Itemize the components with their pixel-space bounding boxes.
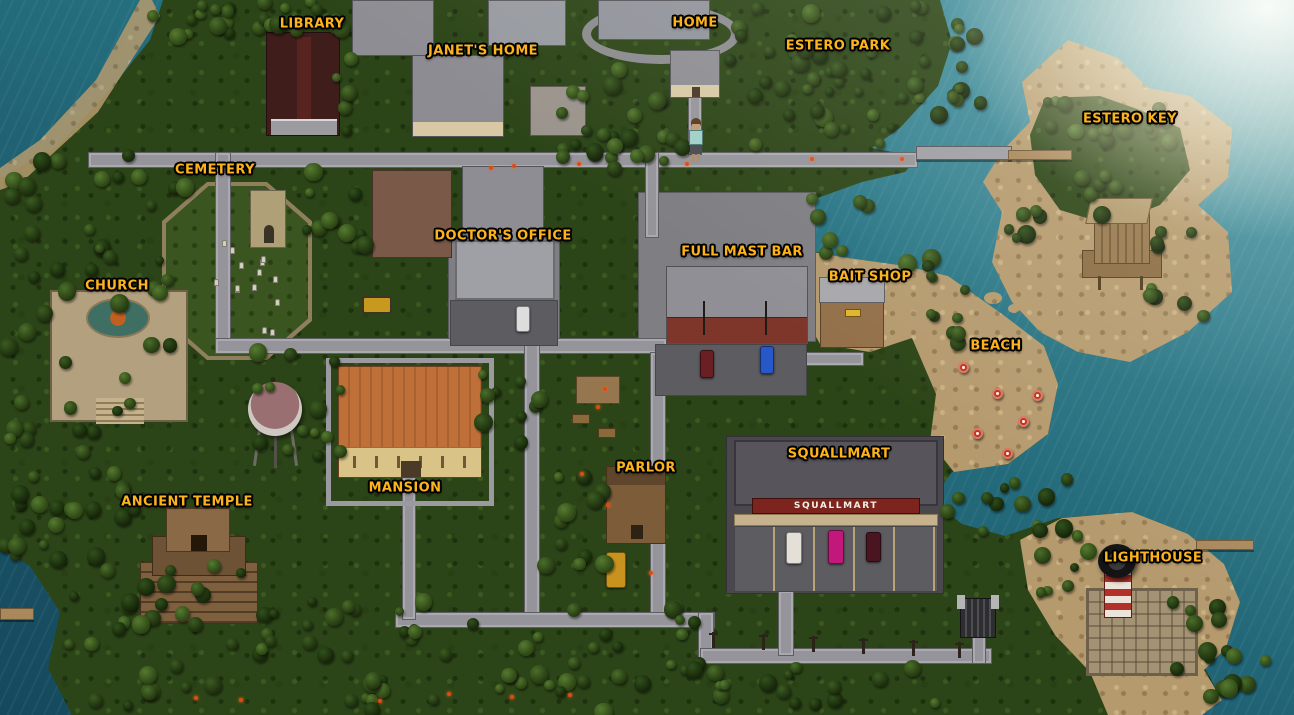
map-label-library[interactable]: LIBRARY: [280, 17, 345, 32]
map-label-estero-park[interactable]: ESTERO PARK: [786, 39, 890, 54]
map-label-mansion[interactable]: MANSION: [369, 481, 442, 496]
map-label-full-mast-bar[interactable]: FULL MAST BAR: [681, 245, 802, 260]
map-label-bait-shop[interactable]: BAIT SHOP: [829, 270, 912, 285]
map-label-parlor[interactable]: PARLOR: [616, 461, 676, 476]
map-label-cemetery[interactable]: CEMETERY: [175, 163, 255, 178]
map-label-doctors-office[interactable]: DOCTOR'S OFFICE: [434, 229, 571, 244]
map-label-squallmart[interactable]: SQUALLMART: [788, 447, 891, 462]
map-label-beach[interactable]: BEACH: [970, 339, 1021, 354]
map-label-lighthouse[interactable]: LIGHTHOUSE: [1104, 551, 1202, 566]
map-label-church[interactable]: CHURCH: [85, 279, 149, 294]
map-label-estero-key[interactable]: ESTERO KEY: [1083, 112, 1177, 127]
map-label-janets-home[interactable]: JANET'S HOME: [428, 44, 538, 59]
map-label-ancient-temple[interactable]: ANCIENT TEMPLE: [121, 495, 252, 510]
game-map: SQUALLMART: [0, 0, 1294, 715]
label-layer: LIBRARYJANET'S HOMEHOMEESTERO PARKESTERO…: [0, 0, 1294, 715]
map-label-home[interactable]: HOME: [672, 16, 717, 31]
